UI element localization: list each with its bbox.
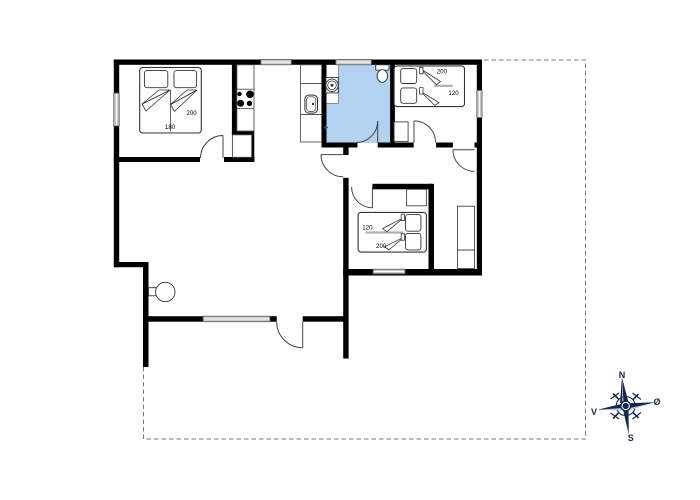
svg-text:200: 200 [186, 110, 197, 117]
svg-text:Ø: Ø [653, 397, 660, 407]
svg-text:200: 200 [437, 69, 448, 76]
svg-text:N: N [619, 370, 626, 380]
svg-text:120: 120 [448, 90, 459, 97]
svg-text:V: V [591, 407, 597, 417]
svg-text:200: 200 [376, 243, 387, 250]
svg-text:180: 180 [165, 124, 176, 131]
svg-text:120: 120 [362, 224, 373, 231]
svg-text:S: S [628, 433, 634, 443]
